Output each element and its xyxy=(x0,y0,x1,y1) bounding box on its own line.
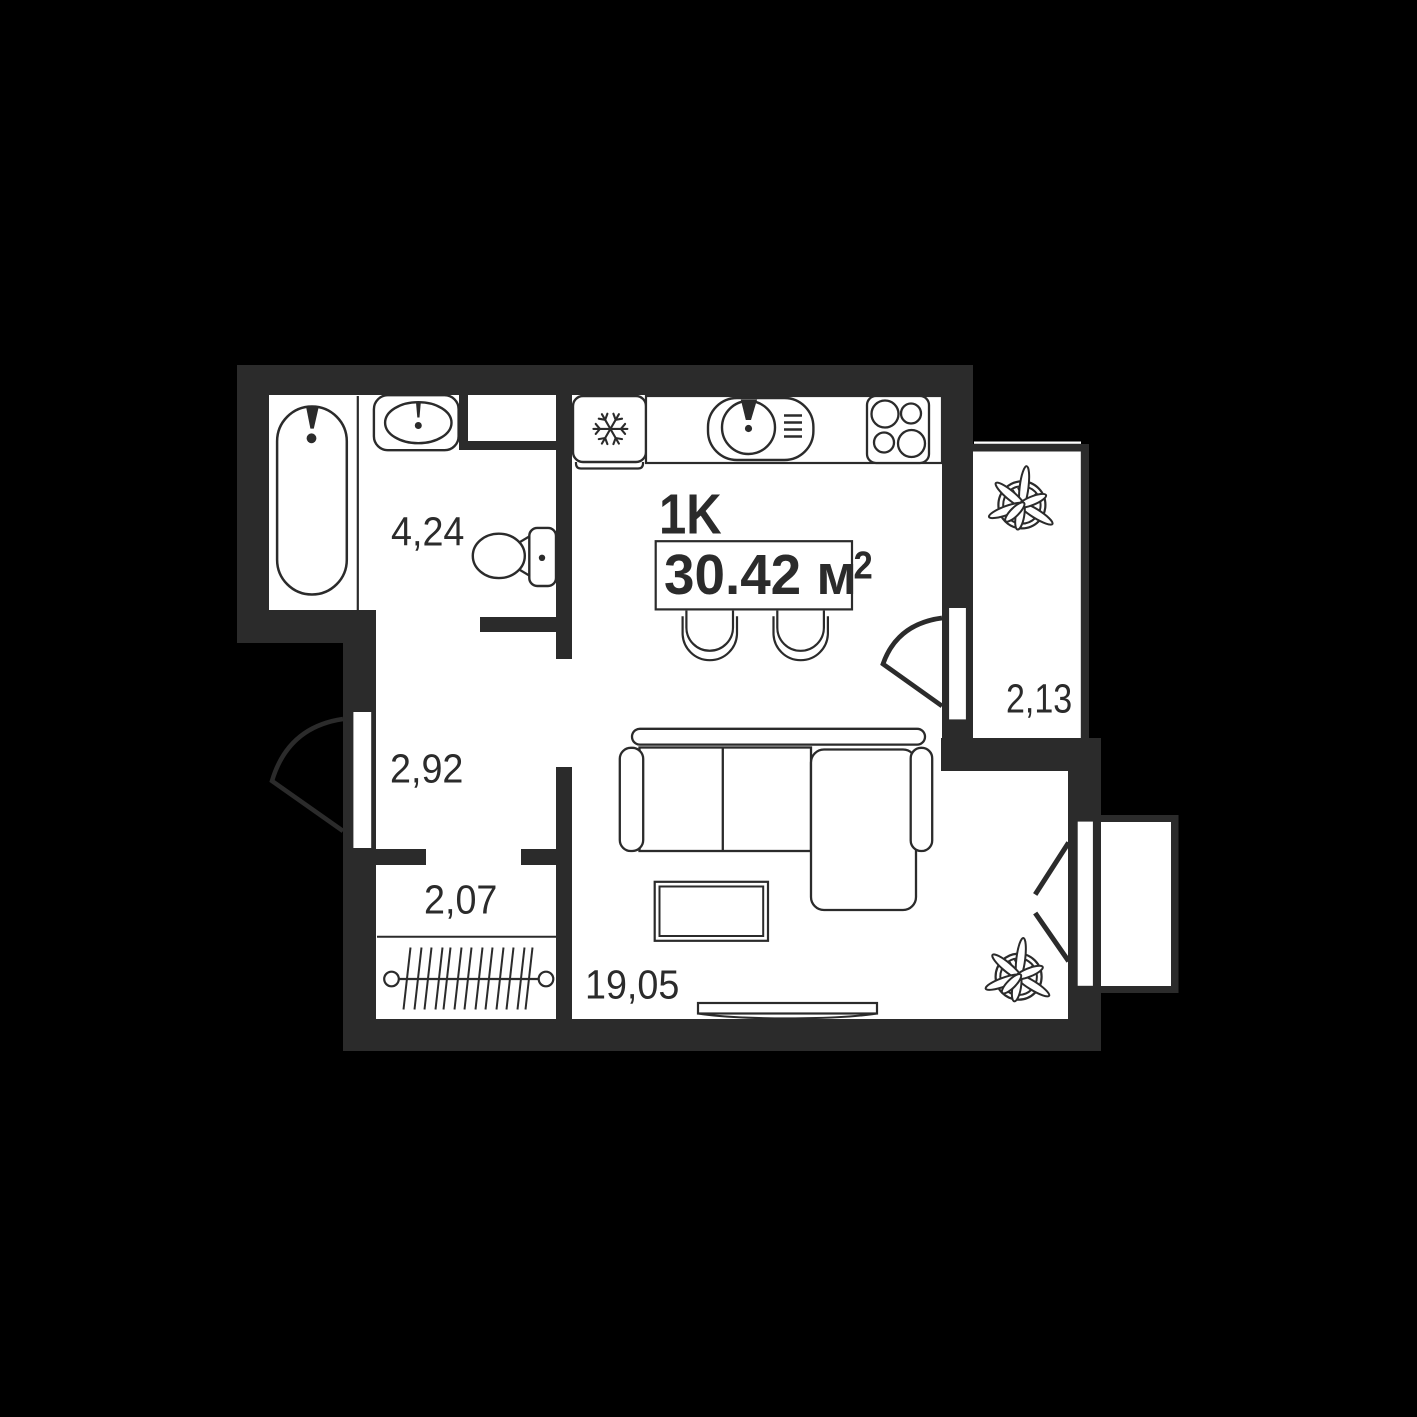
svg-text:4,24: 4,24 xyxy=(391,509,464,555)
svg-text:1K: 1K xyxy=(659,483,722,546)
svg-text:2,07: 2,07 xyxy=(424,877,497,923)
svg-text:30.42 м: 30.42 м xyxy=(664,542,857,606)
svg-text:2,92: 2,92 xyxy=(390,746,463,792)
svg-text:2: 2 xyxy=(854,544,873,587)
svg-text:2,13: 2,13 xyxy=(1006,676,1072,722)
svg-text:19,05: 19,05 xyxy=(585,962,679,1008)
